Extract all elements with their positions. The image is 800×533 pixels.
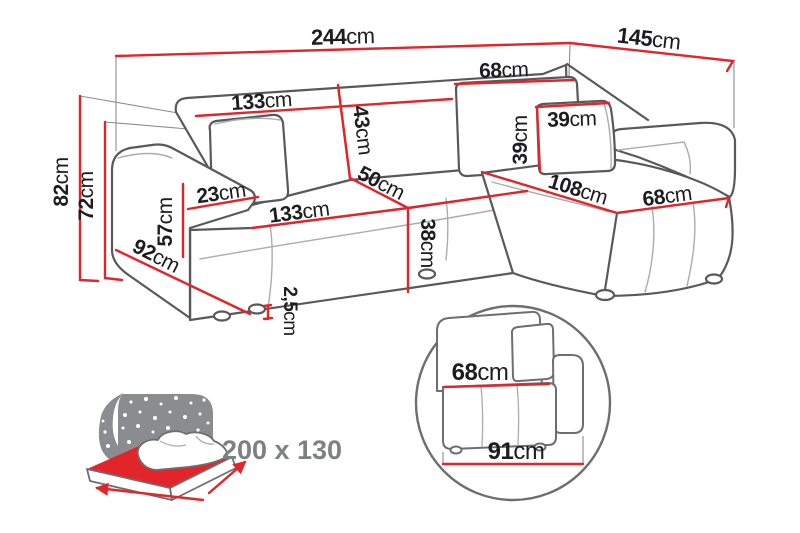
dim-label-total-width: 244cm bbox=[311, 23, 375, 50]
dim-label-leg-height: 2,5cm bbox=[279, 286, 300, 335]
sofa-leg bbox=[214, 312, 230, 321]
dim-label-armrest-height: 57cm bbox=[154, 197, 177, 246]
dim-label-back-cushion-width: 133cm bbox=[231, 88, 293, 115]
diagram-svg: 244cm 145cm 82cm 72cm 133cm 43cm 50cm 68… bbox=[0, 0, 800, 533]
extension-line-back-corner bbox=[569, 44, 570, 76]
extension-line-back-height bbox=[105, 122, 188, 129]
dim-label-back-height: 72cm bbox=[75, 171, 98, 220]
dim-label-pillow-width: 39cm bbox=[547, 107, 597, 132]
extension-line-total-height bbox=[80, 96, 178, 113]
sofa-leg bbox=[419, 270, 435, 279]
dim-label-right-back-cushion: 68cm bbox=[479, 58, 529, 83]
detail-pillow bbox=[512, 324, 554, 381]
sofa-leg bbox=[249, 305, 265, 314]
dim-label-seat-height: 38cm bbox=[416, 218, 439, 267]
sofa-leg bbox=[706, 275, 722, 284]
detail-label-seat-width: 68cm bbox=[452, 359, 509, 386]
detail-armrest bbox=[553, 355, 583, 433]
sofa-leg bbox=[596, 290, 614, 300]
sleeping-size-label: 200 x 130 bbox=[222, 435, 342, 465]
sofa-dimension-diagram: 244cm 145cm 82cm 72cm 133cm 43cm 50cm 68… bbox=[0, 0, 800, 533]
detail-label-total-width: 91cm bbox=[488, 438, 545, 465]
detail-leg bbox=[451, 447, 462, 454]
detail-view: 68cm 91cm bbox=[416, 306, 610, 500]
dim-label-total-height: 82cm bbox=[50, 157, 73, 206]
dim-label-pillow-height: 39cm bbox=[509, 115, 532, 164]
